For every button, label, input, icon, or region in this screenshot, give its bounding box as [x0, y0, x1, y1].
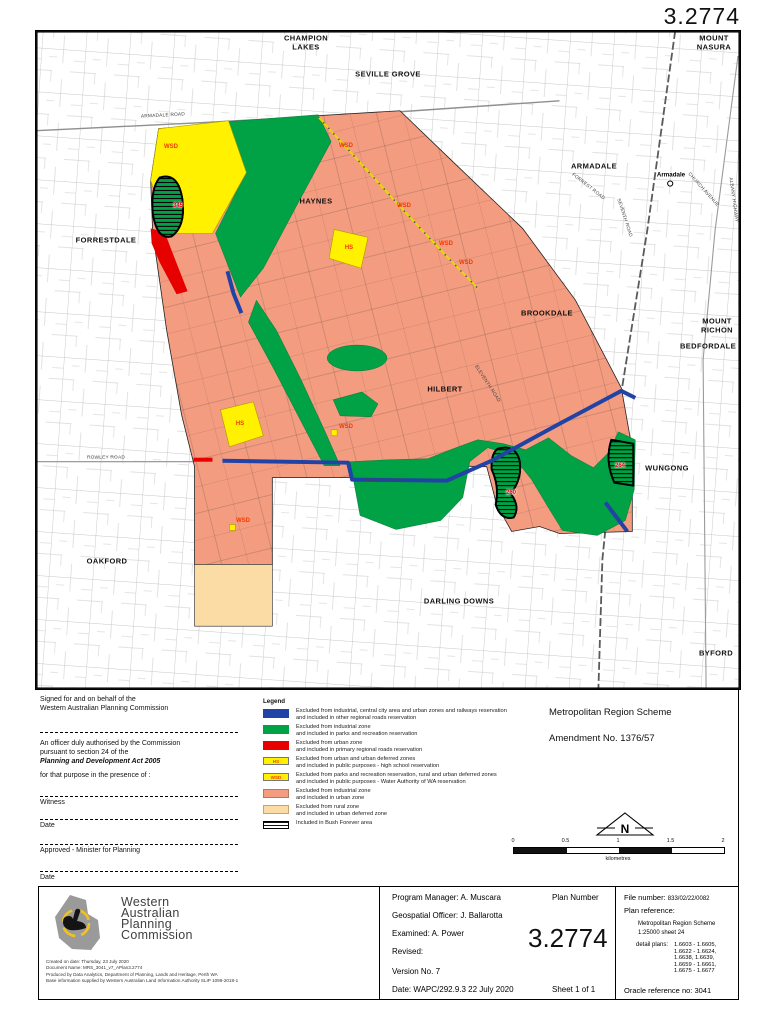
scale-tick: 0.5 [562, 838, 570, 844]
examined: Examined: A. Power [392, 929, 464, 938]
program-manager: Program Manager: A. Muscara [392, 893, 501, 902]
legend-swatch-salmon [263, 789, 289, 798]
legend-swatch-blue [263, 709, 289, 718]
footer-left: WesternAustralianPlanningCommission Crea… [39, 887, 379, 999]
plan-document-page: 3.2774 [0, 0, 770, 1024]
legend-item: Excluded from urban zoneand included in … [263, 740, 521, 753]
footer-right: File number: 833/02/22/0082 Plan referen… [615, 887, 738, 999]
north-arrow-graphic: N [593, 810, 657, 840]
signature-line [40, 871, 238, 872]
file-number-label: File number: [624, 893, 666, 902]
plan-reference-line: 1:25000 sheet 24 [638, 929, 715, 938]
approved-label: Approved - Minister for Planning [40, 847, 140, 855]
detail-plan-line: 1.6603 - 1.6605, [674, 942, 716, 949]
scale-tick: 2 [721, 838, 724, 844]
date-label: Date [40, 874, 55, 882]
plan-reference-label: Plan reference: [624, 906, 675, 915]
sheet: Sheet 1 of 1 [552, 985, 595, 994]
map-graphic [36, 31, 740, 689]
plan-reference: Metropolitan Region Scheme1:25000 sheet … [638, 920, 715, 937]
legend-item: HSExcluded from urban and urban deferred… [263, 756, 521, 769]
signature-line [40, 796, 238, 797]
urban-deferred-area [195, 564, 273, 626]
signature-line [40, 819, 238, 820]
legend-swatch-hs: HS [263, 757, 289, 765]
plan-reference-line: Metropolitan Region Scheme [638, 920, 715, 929]
date-label: Date [40, 822, 55, 830]
legend-title: Legend [263, 698, 521, 705]
detail-plan-line: 1.6675 - 1.6677 [674, 968, 716, 975]
legend-item-text: Included in Bush Forever area [296, 820, 372, 829]
detail-plan-line: 1.6622 - 1.6624, [674, 949, 716, 956]
map [35, 30, 741, 690]
wapc-logo [46, 892, 124, 952]
amendment-number: Amendment No. 1376/57 [549, 733, 734, 744]
legend-item: Excluded from industrial zoneand include… [263, 724, 521, 737]
scale-tick: 0 [511, 838, 514, 844]
detail-plans: 1.6603 - 1.6605,1.6622 - 1.6624,1.6638, … [674, 942, 716, 975]
signature-line [40, 844, 238, 845]
legend-item-text: Excluded from industrial, central city a… [296, 708, 507, 721]
revised: Revised: [392, 947, 423, 956]
legend-swatch-red [263, 741, 289, 750]
legend-items: Excluded from industrial, central city a… [263, 708, 521, 829]
scale-tick: 1 [616, 838, 619, 844]
file-number-value: 833/02/22/0082 [668, 896, 710, 902]
geospatial-officer: Geospatial Officer: J. Ballarotta [392, 911, 503, 920]
version: Version No. 7 [392, 967, 440, 976]
svg-text:N: N [621, 822, 630, 836]
fine-print: Created on date: Thursday, 23 July 2020D… [46, 959, 238, 985]
legend-item-text: Excluded from parks and recreation reser… [296, 772, 497, 785]
scale-tick: 1.5 [667, 838, 675, 844]
signature-text: Western Australian Planning Commission [40, 705, 168, 713]
plan-number-label: Plan Number [552, 893, 599, 902]
detail-plan-line: 1.6659 - 1.6661, [674, 962, 716, 969]
witness-label: Witness [40, 799, 65, 807]
legend-item-text: Excluded from urban and urban deferred z… [296, 756, 439, 769]
plan-number: 3.2774 [528, 923, 608, 954]
detail-plan-line: 1.6638, 1.6639, [674, 955, 716, 962]
legend-item: Excluded from industrial zoneand include… [263, 788, 521, 801]
legend-swatch-green [263, 725, 289, 734]
legend-item-text: Excluded from urban zoneand included in … [296, 740, 422, 753]
north-arrow: N [593, 810, 657, 840]
file-number: File number: 833/02/22/0082 [624, 893, 710, 902]
date-line: Date: WAPC/292.9.3 22 July 2020 [392, 985, 514, 994]
footer: WesternAustralianPlanningCommission Crea… [38, 886, 739, 1000]
legend-item: Included in Bush Forever area [263, 820, 521, 829]
legend-item-text: Excluded from industrial zoneand include… [296, 788, 371, 801]
signature-text: for that purpose in the presence of : [40, 772, 151, 780]
station-symbol [668, 181, 673, 186]
legend-item-text: Excluded from industrial zoneand include… [296, 724, 417, 737]
legend-swatch-peach [263, 805, 289, 814]
signature-line [40, 732, 238, 733]
act-title: Planning and Development Act 2005 [40, 758, 160, 766]
legend-swatch-bush [263, 821, 289, 829]
legend: Legend Excluded from industrial, central… [263, 698, 521, 832]
signature-text: An officer duly authorised by the Commis… [40, 740, 180, 748]
scale-unit: kilometres [513, 856, 723, 862]
org-name-line: Commission [121, 930, 193, 941]
org-name: WesternAustralianPlanningCommission [121, 897, 193, 941]
scale-bar-graphic [513, 847, 725, 854]
legend-item: WSDExcluded from parks and recreation re… [263, 772, 521, 785]
legend-item: Excluded from industrial, central city a… [263, 708, 521, 721]
legend-item-text: Excluded from rural zoneand included in … [296, 804, 387, 817]
plan-number-top: 3.2774 [664, 3, 740, 30]
scale-bar: 00.511.52 kilometres [513, 838, 727, 866]
oracle-reference: Oracle reference no: 3041 [624, 986, 711, 995]
legend-item: Excluded from rural zoneand included in … [263, 804, 521, 817]
signature-text: pursuant to section 24 of the [40, 749, 128, 757]
detail-plans-label: detail plans: [636, 942, 668, 948]
scheme-block: Metropolitan Region Scheme Amendment No.… [549, 707, 734, 744]
scheme-title: Metropolitan Region Scheme [549, 707, 734, 718]
fine-print-line: Base information supplied by Western Aus… [46, 978, 238, 984]
divider [738, 690, 739, 886]
legend-swatch-wsd: WSD [263, 773, 289, 781]
signature-text: Signed for and on behalf of the [40, 696, 136, 704]
footer-middle: Program Manager: A. Muscara Plan Number … [379, 887, 615, 999]
